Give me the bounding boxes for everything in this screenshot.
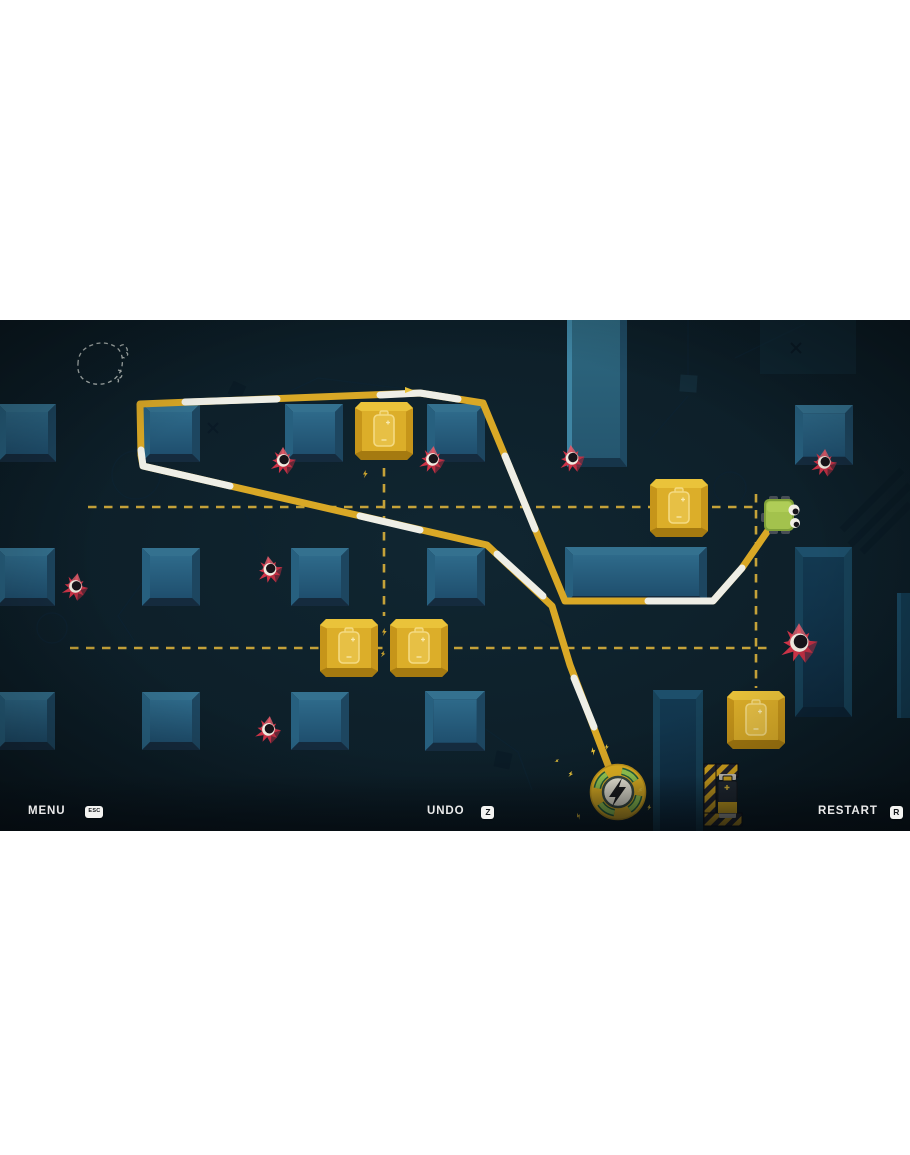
r-key-badge: R [890,806,903,819]
restart-button[interactable]: RESTART R [818,803,903,821]
esc-key-badge: ESC [85,806,103,818]
screenshot-page: MENU ESC UNDO Z RESTART R [0,0,910,1155]
game-scene [0,320,910,831]
z-key-badge: Z [481,806,494,819]
vignette [0,320,910,831]
game-viewport[interactable]: MENU ESC UNDO Z RESTART R [0,320,910,831]
menu-button[interactable]: MENU ESC [28,803,103,821]
undo-button[interactable]: UNDO Z [427,803,494,821]
menu-label: MENU [28,806,65,818]
restart-label: RESTART [818,806,878,818]
undo-label: UNDO [427,806,464,818]
